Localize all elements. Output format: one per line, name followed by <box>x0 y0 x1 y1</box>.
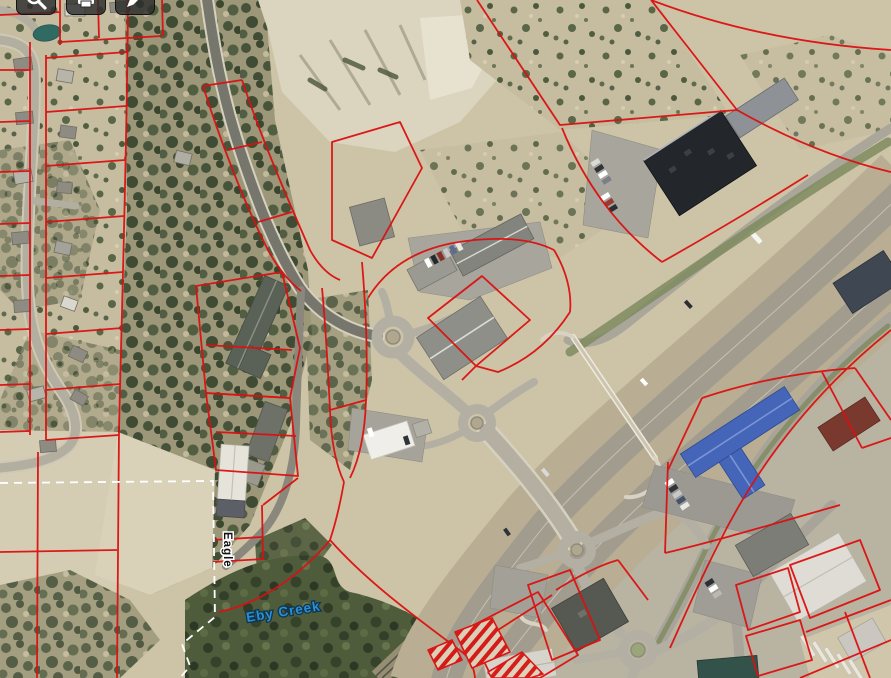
print-button[interactable] <box>66 0 106 15</box>
draw-button[interactable] <box>115 0 155 15</box>
map-canvas[interactable]: Eagle Eby Creek <box>0 0 891 678</box>
search-button[interactable] <box>16 0 56 15</box>
aerial-map: Eagle Eby Creek <box>0 0 891 678</box>
search-icon <box>25 0 47 10</box>
pencil-icon <box>124 0 146 10</box>
street-label: Eagle <box>221 532 233 568</box>
storage-building <box>216 444 249 518</box>
print-icon <box>75 0 97 10</box>
